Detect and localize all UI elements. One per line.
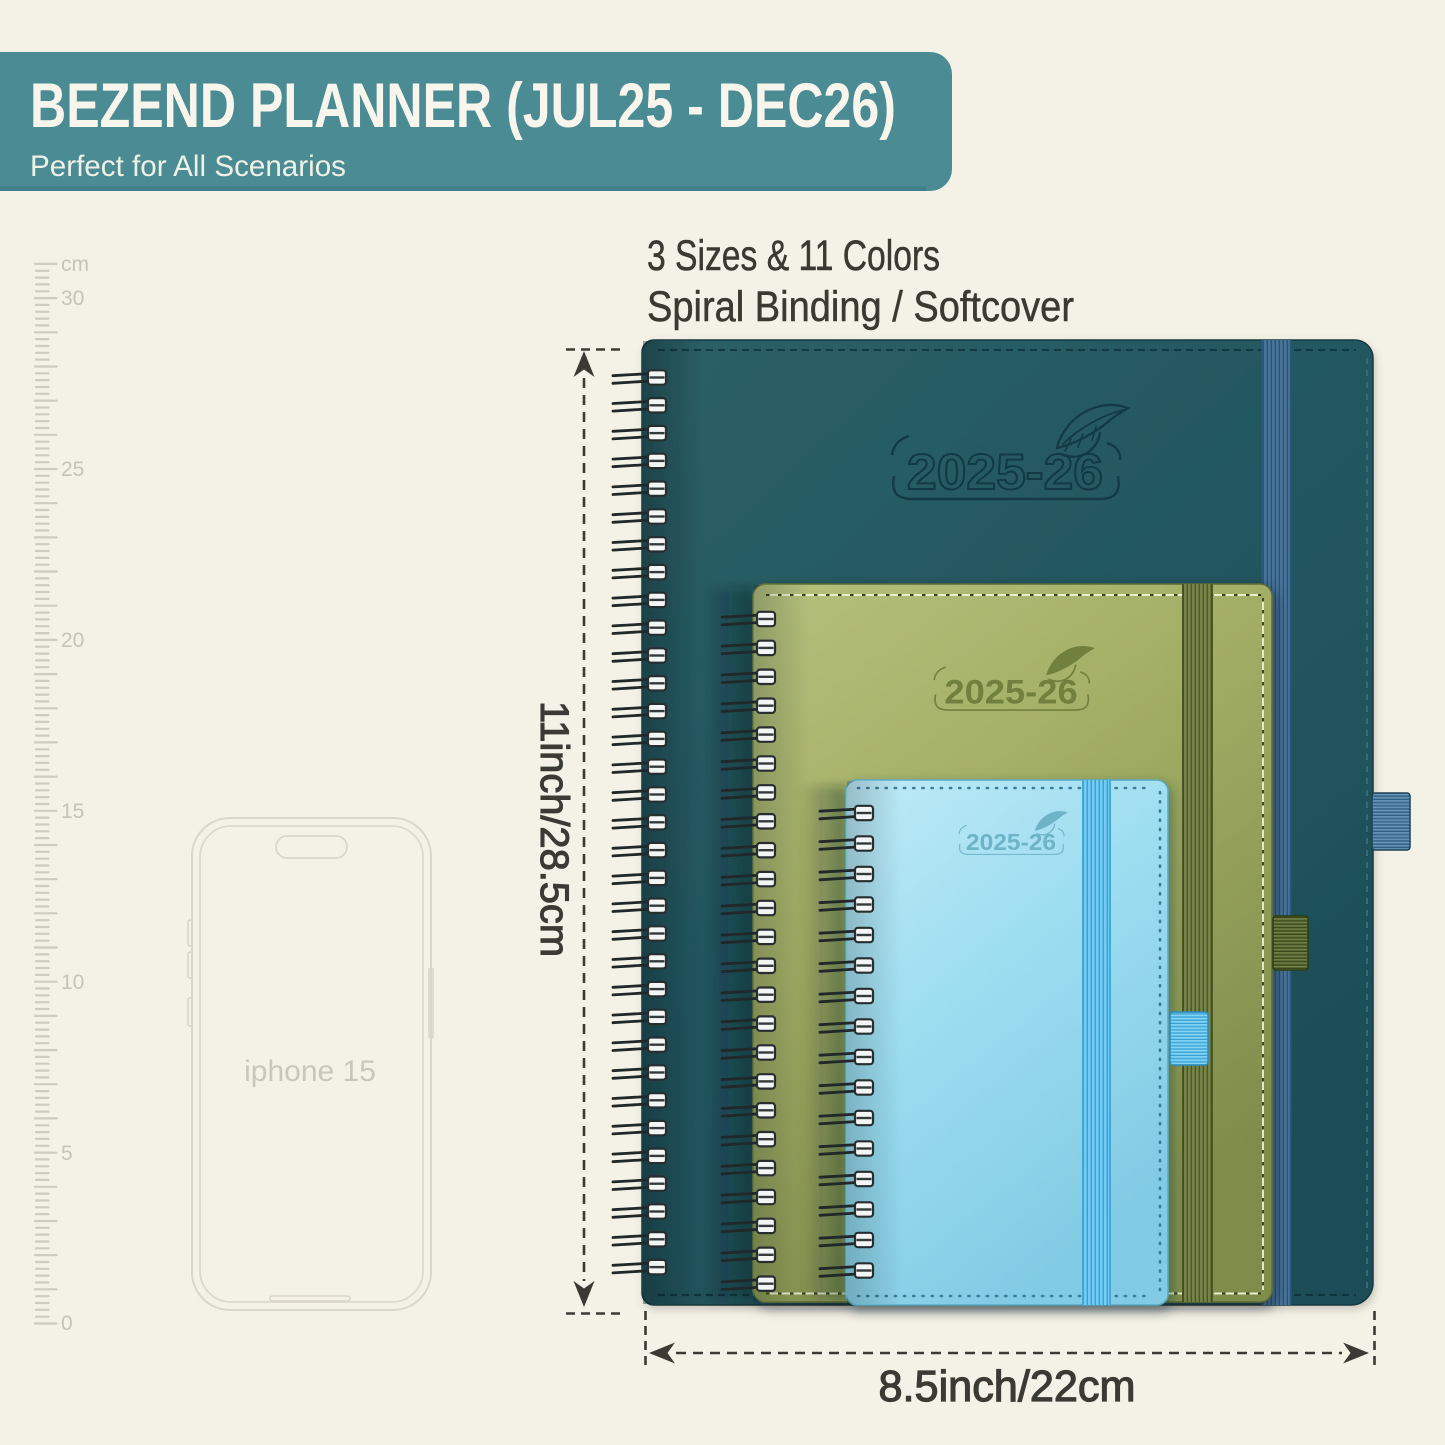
svg-text:Perfect for All Scenarios: Perfect for All Scenarios	[30, 150, 346, 183]
svg-text:iphone 15: iphone 15	[244, 1055, 376, 1088]
svg-text:11inch/28.5cm: 11inch/28.5cm	[532, 701, 576, 957]
svg-text:3 Sizes & 11 Colors: 3 Sizes & 11 Colors	[647, 232, 940, 280]
svg-text:Spiral Binding / Softcover: Spiral Binding / Softcover	[647, 283, 1074, 331]
svg-text:2025-26: 2025-26	[907, 444, 1103, 500]
svg-text:25: 25	[61, 458, 84, 481]
svg-text:5: 5	[61, 1142, 73, 1165]
svg-text:15: 15	[61, 800, 84, 823]
svg-text:2025-26: 2025-26	[966, 829, 1056, 855]
svg-text:cm: cm	[61, 253, 89, 276]
svg-text:BEZEND PLANNER (JUL25 - DEC26): BEZEND PLANNER (JUL25 - DEC26)	[30, 71, 896, 141]
svg-text:30: 30	[61, 287, 84, 310]
svg-text:20: 20	[61, 629, 84, 652]
svg-text:0: 0	[61, 1312, 73, 1335]
svg-text:8.5inch/22cm: 8.5inch/22cm	[879, 1362, 1136, 1411]
svg-text:10: 10	[61, 971, 84, 994]
svg-text:2025-26: 2025-26	[944, 673, 1077, 711]
